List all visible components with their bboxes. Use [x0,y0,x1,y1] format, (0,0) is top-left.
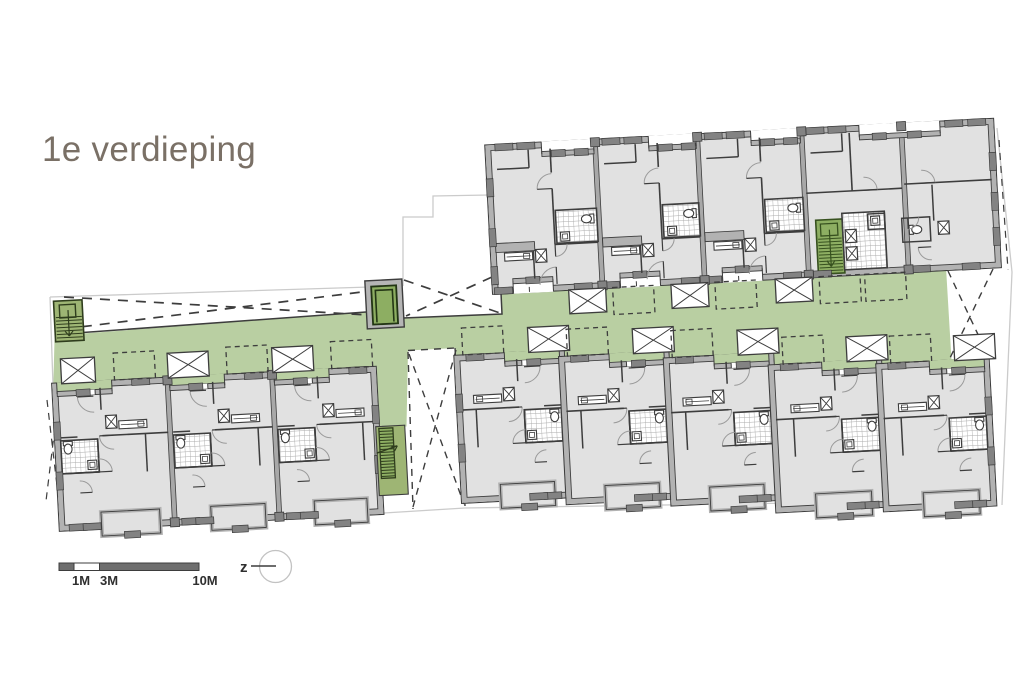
svg-text:1M: 1M [72,573,90,588]
svg-text:1e verdieping: 1e verdieping [42,130,256,169]
svg-text:10M: 10M [192,573,217,588]
svg-text:z: z [240,559,248,576]
svg-text:3M: 3M [100,573,118,588]
